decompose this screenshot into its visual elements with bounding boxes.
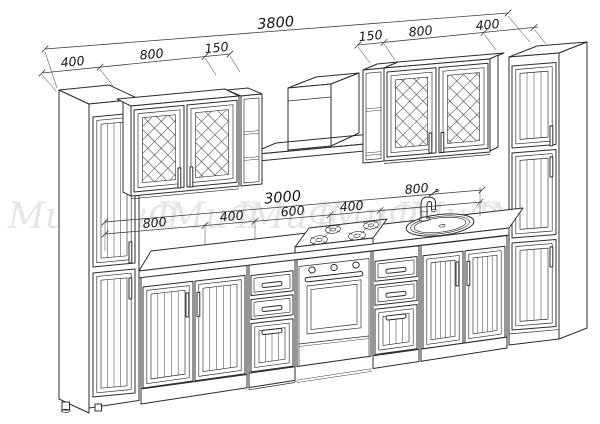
wall-cabinet-left: [117, 89, 239, 199]
dimension-label: 3800: [257, 14, 295, 33]
dimension-label: 400: [60, 53, 85, 70]
dimension-label: 800: [139, 45, 164, 62]
tall-cabinet-right: [509, 42, 587, 345]
dimension-label: 400: [219, 208, 244, 225]
oven-knob: [309, 267, 316, 274]
kitchen-technical-drawing-canvas: МиФМиФМиФМиФМиФМиФМиФ3800400800150150800…: [0, 0, 600, 424]
dimension-label: 400: [475, 16, 500, 33]
dimension-label: 150: [204, 39, 229, 56]
dimension-label: 800: [142, 214, 167, 231]
oven-knob: [353, 262, 360, 269]
dimension-label: 800: [408, 22, 433, 39]
sink-base-cabinet: [421, 236, 507, 362]
oven-knob: [331, 264, 338, 271]
dimension-label: 600: [280, 203, 305, 220]
base-cabinet-doors-left: [141, 266, 247, 405]
oven: [297, 251, 371, 382]
dimension-label: 400: [339, 198, 364, 215]
kitchen-set-line-drawing: МиФМиФМиФМиФМиФМиФМиФ3800400800150150800…: [0, 0, 600, 424]
dimension-label: 800: [404, 180, 429, 197]
watermark-text: МиФ: [167, 196, 258, 237]
wall-cabinet-right: [384, 53, 504, 164]
drawer-unit-right: [373, 246, 419, 369]
dimension-label: 150: [358, 27, 383, 44]
drawer-unit-left: [249, 260, 295, 390]
